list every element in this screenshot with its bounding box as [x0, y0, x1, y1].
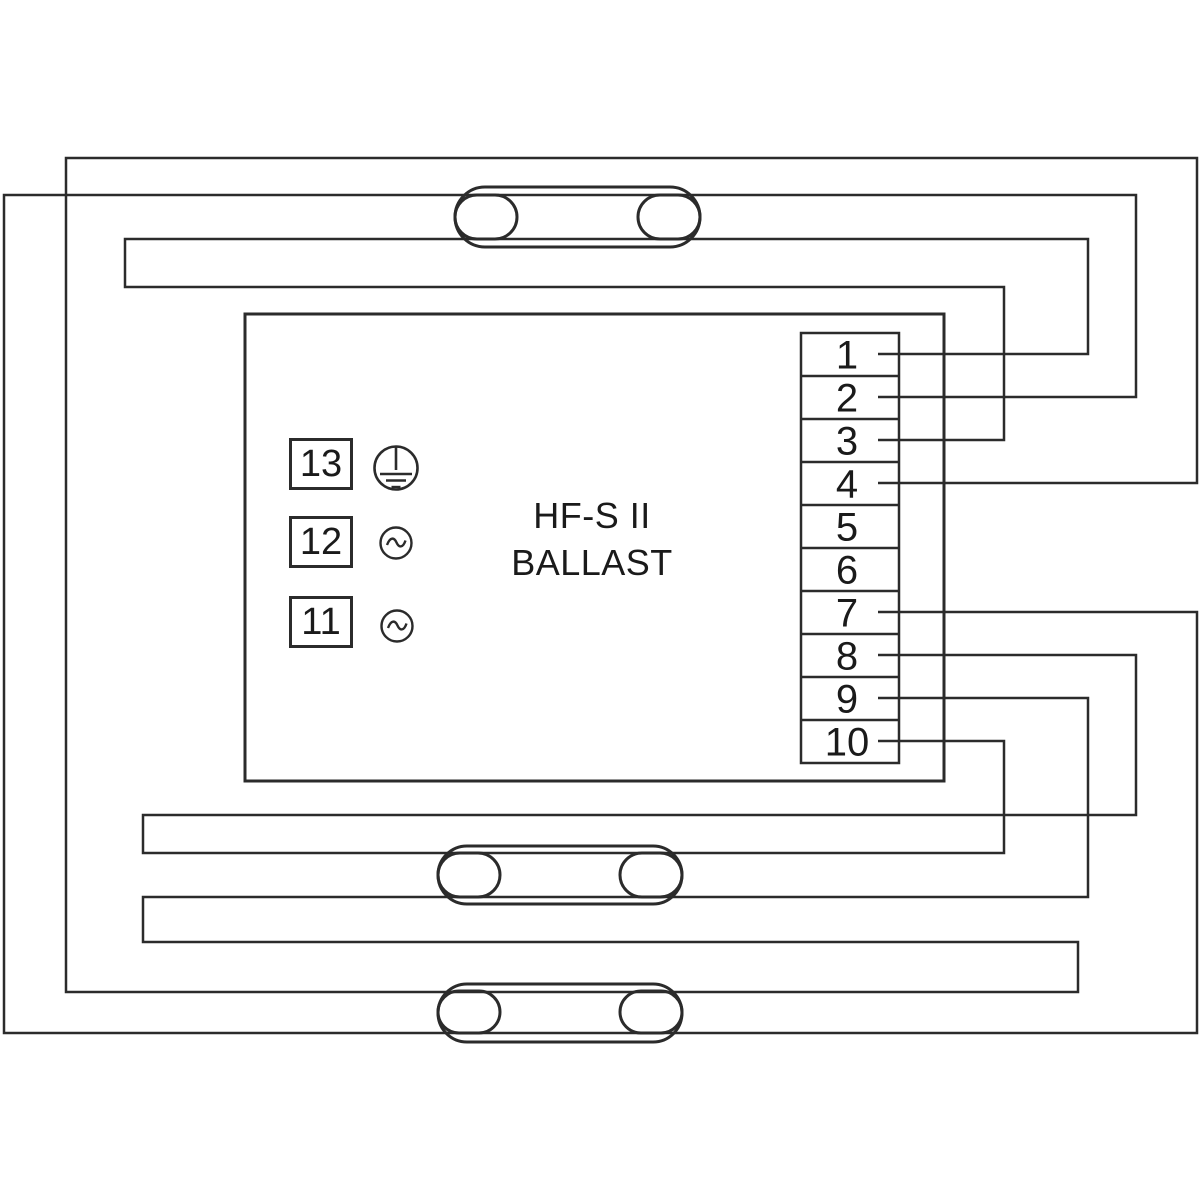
ballast-wiring-diagram: 12345678910 HF-S II BALLAST 13 12 11	[0, 0, 1200, 1200]
mains-terminal-13: 13	[289, 438, 353, 490]
wire-terminal8-lamp2-terminal10	[143, 655, 1136, 853]
lamp-3-electrode-right	[620, 991, 682, 1033]
terminal-6-label: 6	[836, 549, 858, 593]
terminal-4-label: 4	[836, 463, 858, 507]
ac-supply-icon	[379, 526, 413, 560]
lamp-3-electrode-left	[438, 991, 500, 1033]
mains-terminal-11-label: 11	[301, 601, 340, 644]
terminal-10-label: 10	[825, 721, 870, 765]
lamp-2-tube	[438, 846, 682, 904]
ac-supply-icon	[380, 609, 414, 643]
mains-terminal-13-label: 13	[300, 443, 342, 486]
terminal-3-label: 3	[836, 420, 858, 464]
lamp-1-electrode-right	[638, 195, 700, 239]
terminal-1-label: 1	[836, 334, 858, 378]
lamp-2-electrode-right	[620, 853, 682, 897]
ballast-model-text: HF-S II	[412, 492, 772, 539]
mains-terminal-12: 12	[289, 516, 353, 568]
terminal-2-label: 2	[836, 377, 858, 421]
terminal-8-label: 8	[836, 635, 858, 679]
terminal-5-label: 5	[836, 506, 858, 550]
wire-terminal2-lamp1-lamp3-terminal7	[4, 195, 1197, 1033]
ballast-label: HF-S II BALLAST	[412, 492, 772, 586]
ballast-type-text: BALLAST	[412, 539, 772, 586]
protective-earth-icon	[372, 444, 420, 492]
lamp-1-electrode-left	[455, 195, 517, 239]
mains-terminal-12-label: 12	[300, 521, 342, 564]
mains-terminal-11: 11	[289, 596, 353, 648]
diagram-canvas: 12345678910	[0, 0, 1200, 1200]
terminal-7-label: 7	[836, 592, 858, 636]
lamp-2-electrode-left	[438, 853, 500, 897]
terminal-9-label: 9	[836, 678, 858, 722]
